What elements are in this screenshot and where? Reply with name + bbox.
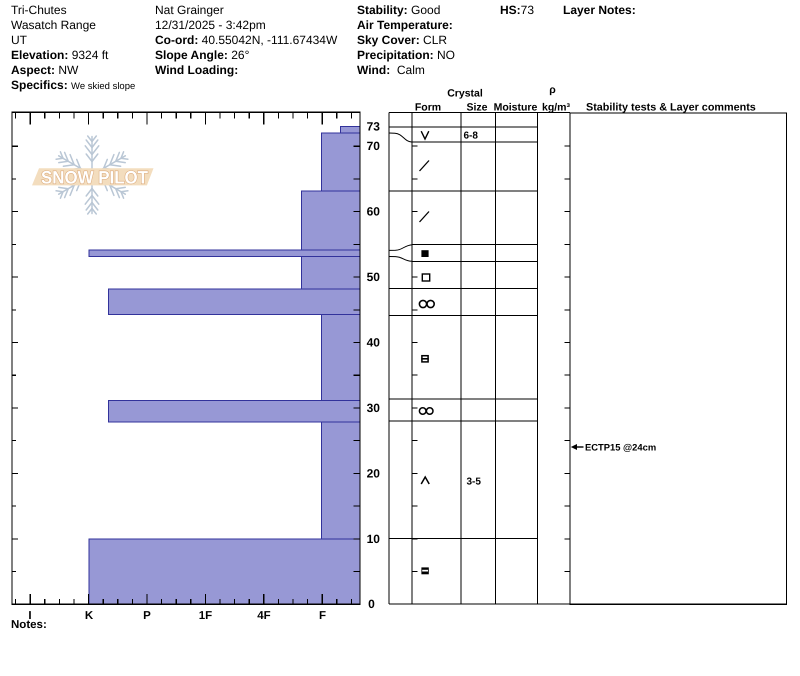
svg-text:Specifics: We skied slope: Specifics: We skied slope xyxy=(11,78,135,92)
svg-text:SNOW PILOT: SNOW PILOT xyxy=(41,168,148,188)
svg-text:73: 73 xyxy=(367,120,381,134)
svg-text:Nat Grainger: Nat Grainger xyxy=(155,3,224,17)
svg-text:50: 50 xyxy=(367,270,381,284)
svg-text:ρ: ρ xyxy=(549,84,556,96)
svg-text:Wasatch Range: Wasatch Range xyxy=(11,18,96,32)
svg-text:kg/m³: kg/m³ xyxy=(542,102,571,114)
svg-text:3-5: 3-5 xyxy=(467,477,482,488)
svg-text:Slope Angle: 26°: Slope Angle: 26° xyxy=(155,48,250,62)
svg-text:Wind: Calm: Wind: Calm xyxy=(357,63,425,77)
svg-text:Layer Notes:: Layer Notes: xyxy=(563,3,636,17)
svg-text:Stability tests & Layer commen: Stability tests & Layer comments xyxy=(586,102,756,114)
svg-text:12/31/2025 - 3:42pm: 12/31/2025 - 3:42pm xyxy=(155,18,266,32)
svg-text:Tri-Chutes: Tri-Chutes xyxy=(11,3,67,17)
svg-text:6-8: 6-8 xyxy=(464,131,479,142)
svg-text:Size: Size xyxy=(466,102,487,114)
svg-text:HS:73: HS:73 xyxy=(500,3,534,17)
svg-text:20: 20 xyxy=(367,466,381,480)
svg-text:P: P xyxy=(143,610,151,622)
svg-text:ECTP15 @24cm: ECTP15 @24cm xyxy=(585,442,656,453)
svg-text:UT: UT xyxy=(11,33,28,47)
svg-text:Moisture: Moisture xyxy=(494,102,538,114)
svg-text:Form: Form xyxy=(415,102,441,114)
svg-text:Sky Cover: CLR: Sky Cover: CLR xyxy=(357,33,447,47)
svg-text:Elevation: 9324 ft: Elevation: 9324 ft xyxy=(11,48,109,62)
svg-text:70: 70 xyxy=(367,139,381,153)
svg-text:Notes:: Notes: xyxy=(11,619,47,631)
svg-text:0: 0 xyxy=(368,597,375,611)
svg-text:Crystal: Crystal xyxy=(447,88,483,100)
svg-text:K: K xyxy=(85,610,94,622)
svg-text:1F: 1F xyxy=(199,610,212,622)
svg-text:Aspect: NW: Aspect: NW xyxy=(11,63,79,77)
svg-text:Air Temperature:: Air Temperature: xyxy=(357,18,453,32)
svg-text:60: 60 xyxy=(367,205,381,219)
svg-text:Precipitation: NO: Precipitation: NO xyxy=(357,48,455,62)
svg-text:Wind Loading:: Wind Loading: xyxy=(155,63,238,77)
svg-text:F: F xyxy=(319,610,326,622)
svg-text:4F: 4F xyxy=(257,610,270,622)
svg-text:Stability: Good: Stability: Good xyxy=(357,3,440,17)
svg-text:10: 10 xyxy=(367,532,381,546)
svg-text:Co-ord: 40.55042N, -111.67434W: Co-ord: 40.55042N, -111.67434W xyxy=(155,33,338,47)
svg-text:30: 30 xyxy=(367,401,381,415)
svg-text:40: 40 xyxy=(367,336,381,350)
